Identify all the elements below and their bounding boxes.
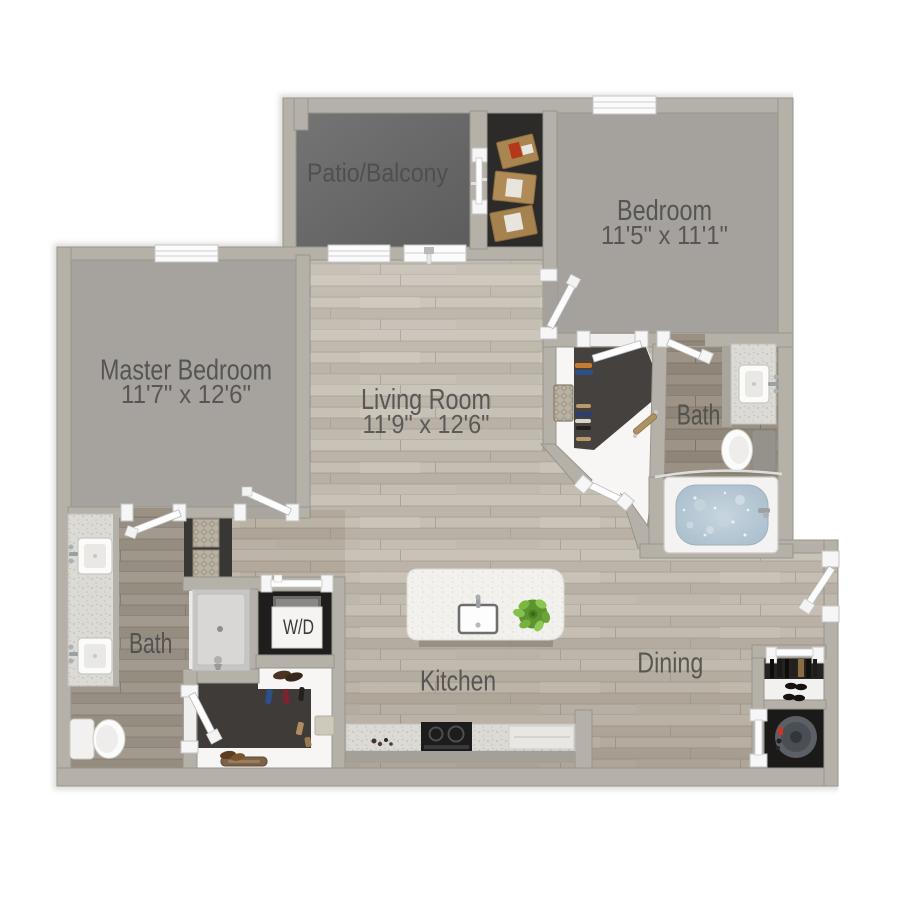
svg-text:11'9" x 12'6": 11'9" x 12'6" xyxy=(363,409,490,439)
svg-text:Dining: Dining xyxy=(637,648,703,680)
svg-text:Bath: Bath xyxy=(129,628,173,660)
svg-text:Bath: Bath xyxy=(677,400,721,432)
svg-text:W/D: W/D xyxy=(283,616,314,639)
svg-text:Kitchen: Kitchen xyxy=(420,666,496,698)
svg-text:11'7" x 12'6": 11'7" x 12'6" xyxy=(121,379,251,409)
svg-text:11'5" x 11'1": 11'5" x 11'1" xyxy=(601,220,728,250)
svg-text:Patio/Balcony: Patio/Balcony xyxy=(307,158,448,188)
